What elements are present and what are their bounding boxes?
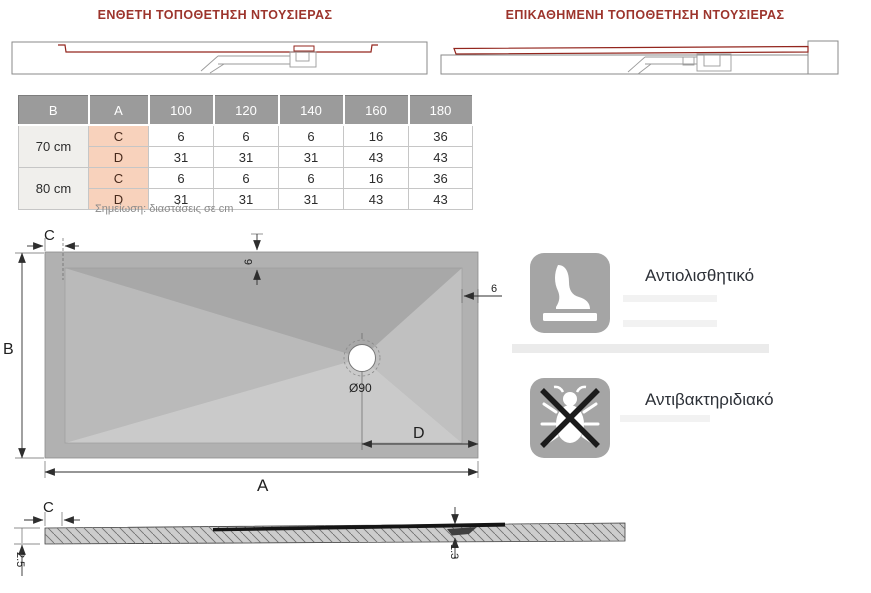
- table-cell: 43: [409, 189, 473, 210]
- table-cell: 31: [279, 189, 344, 210]
- table-header-cell: A: [89, 96, 149, 126]
- section-divider: [512, 344, 769, 353]
- table-cell: 31: [279, 147, 344, 168]
- table-row: 80 cm C 6 6 6 16 36: [19, 168, 473, 189]
- row-label-cell: D: [89, 147, 149, 168]
- table-cell: 16: [344, 168, 409, 189]
- dimension-b: [15, 253, 44, 458]
- table-header-cell: 100: [149, 96, 214, 126]
- overlay-installation-drawing: [435, 30, 865, 85]
- table-cell: 6: [214, 125, 279, 147]
- feature-label-anti-slip: Αντιολισθητικό: [645, 266, 754, 286]
- feature-label-anti-bacterial: Αντιβακτηριδιακό: [645, 390, 774, 410]
- row-label-cell: C: [89, 125, 149, 147]
- table-header-cell: 180: [409, 96, 473, 126]
- table-header-cell: B: [19, 96, 89, 126]
- floor-outline: [441, 55, 838, 74]
- table-cell: 6: [279, 125, 344, 147]
- floor-outline: [12, 42, 427, 74]
- table-cell: 43: [344, 147, 409, 168]
- table-cell: 6: [149, 125, 214, 147]
- ghost-bar: [620, 415, 710, 422]
- table-cell: 43: [344, 189, 409, 210]
- table-note: Σημείωση: διαστάσεις σε cm: [95, 203, 233, 215]
- dim-label-a: A: [257, 476, 269, 495]
- tray-slope-facets: [65, 268, 462, 443]
- dim-label-b: B: [3, 341, 14, 358]
- size-cell: 70 cm: [19, 125, 89, 168]
- table-cell: 6: [149, 168, 214, 189]
- foot-icon: [530, 253, 610, 333]
- dim-label-drain-depth: 1.3: [448, 544, 460, 559]
- tray-profile: [454, 47, 808, 55]
- table-header-cell: 140: [279, 96, 344, 126]
- dim-label-c: C: [44, 227, 55, 244]
- table-cell: 36: [409, 168, 473, 189]
- row-label-cell: C: [89, 168, 149, 189]
- dimensions-table: B A 100 120 140 160 180 70 cm C 6 6 6 16…: [18, 95, 474, 210]
- table-header-row: B A 100 120 140 160 180: [19, 96, 473, 126]
- table-row: 70 cm C 6 6 6 16 36: [19, 125, 473, 147]
- ghost-bar: [623, 295, 717, 302]
- dim-label-c-section: C: [43, 499, 54, 516]
- dim-label-d: D: [413, 425, 425, 442]
- table-cell: 31: [214, 147, 279, 168]
- dim-label-border-right: 6: [491, 283, 497, 295]
- wall-step: [808, 41, 838, 74]
- dim-label-thickness: 2.5: [14, 552, 26, 567]
- page-title-inset: ΕΝΘΕΤΗ ΤΟΠΟΘΕΤΗΣΗ ΝΤΟΥΣΙΕΡΑΣ: [0, 8, 430, 22]
- dim-label-border-top: 6: [243, 259, 255, 265]
- ghost-bar: [623, 320, 717, 327]
- page-title-overlay: ΕΠΙΚΑΘΗΜΕΝΗ ΤΟΠΟΘΕΤΗΣΗ ΝΤΟΥΣΙΕΡΑΣ: [430, 8, 860, 22]
- top-view-drawing: Ø90 A B C D 6 6: [0, 225, 510, 505]
- table-header-cell: 120: [214, 96, 279, 126]
- no-bacteria-icon: [530, 378, 610, 458]
- table-cell: 31: [149, 147, 214, 168]
- table-cell: 43: [409, 147, 473, 168]
- drain-diameter-label: Ø90: [349, 381, 372, 395]
- table-header-cell: 160: [344, 96, 409, 126]
- table-cell: 6: [214, 168, 279, 189]
- table-cell: 36: [409, 125, 473, 147]
- inset-installation-drawing: [8, 30, 433, 85]
- cross-section-drawing: C 2.5 1.3: [0, 498, 660, 593]
- table-cell: 16: [344, 125, 409, 147]
- table-cell: 6: [279, 168, 344, 189]
- size-cell: 80 cm: [19, 168, 89, 210]
